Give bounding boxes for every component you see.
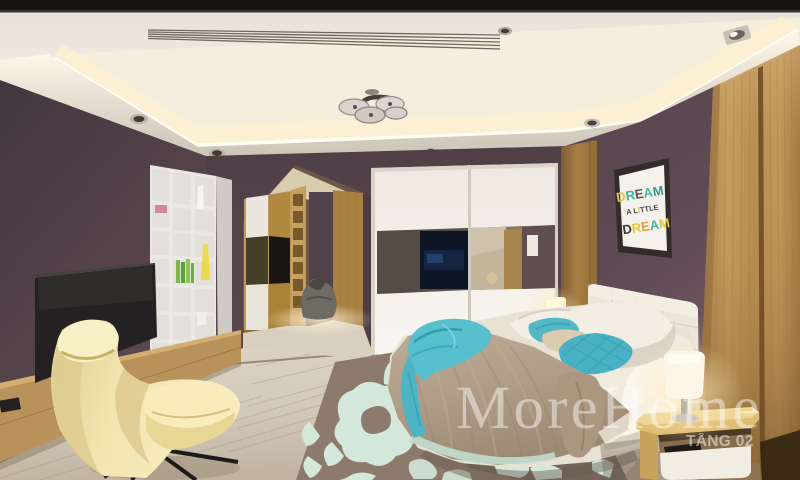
svg-text:TẦNG 02: TẦNG 02 [686, 433, 754, 450]
svg-text:MoreHome: MoreHome [456, 375, 763, 442]
